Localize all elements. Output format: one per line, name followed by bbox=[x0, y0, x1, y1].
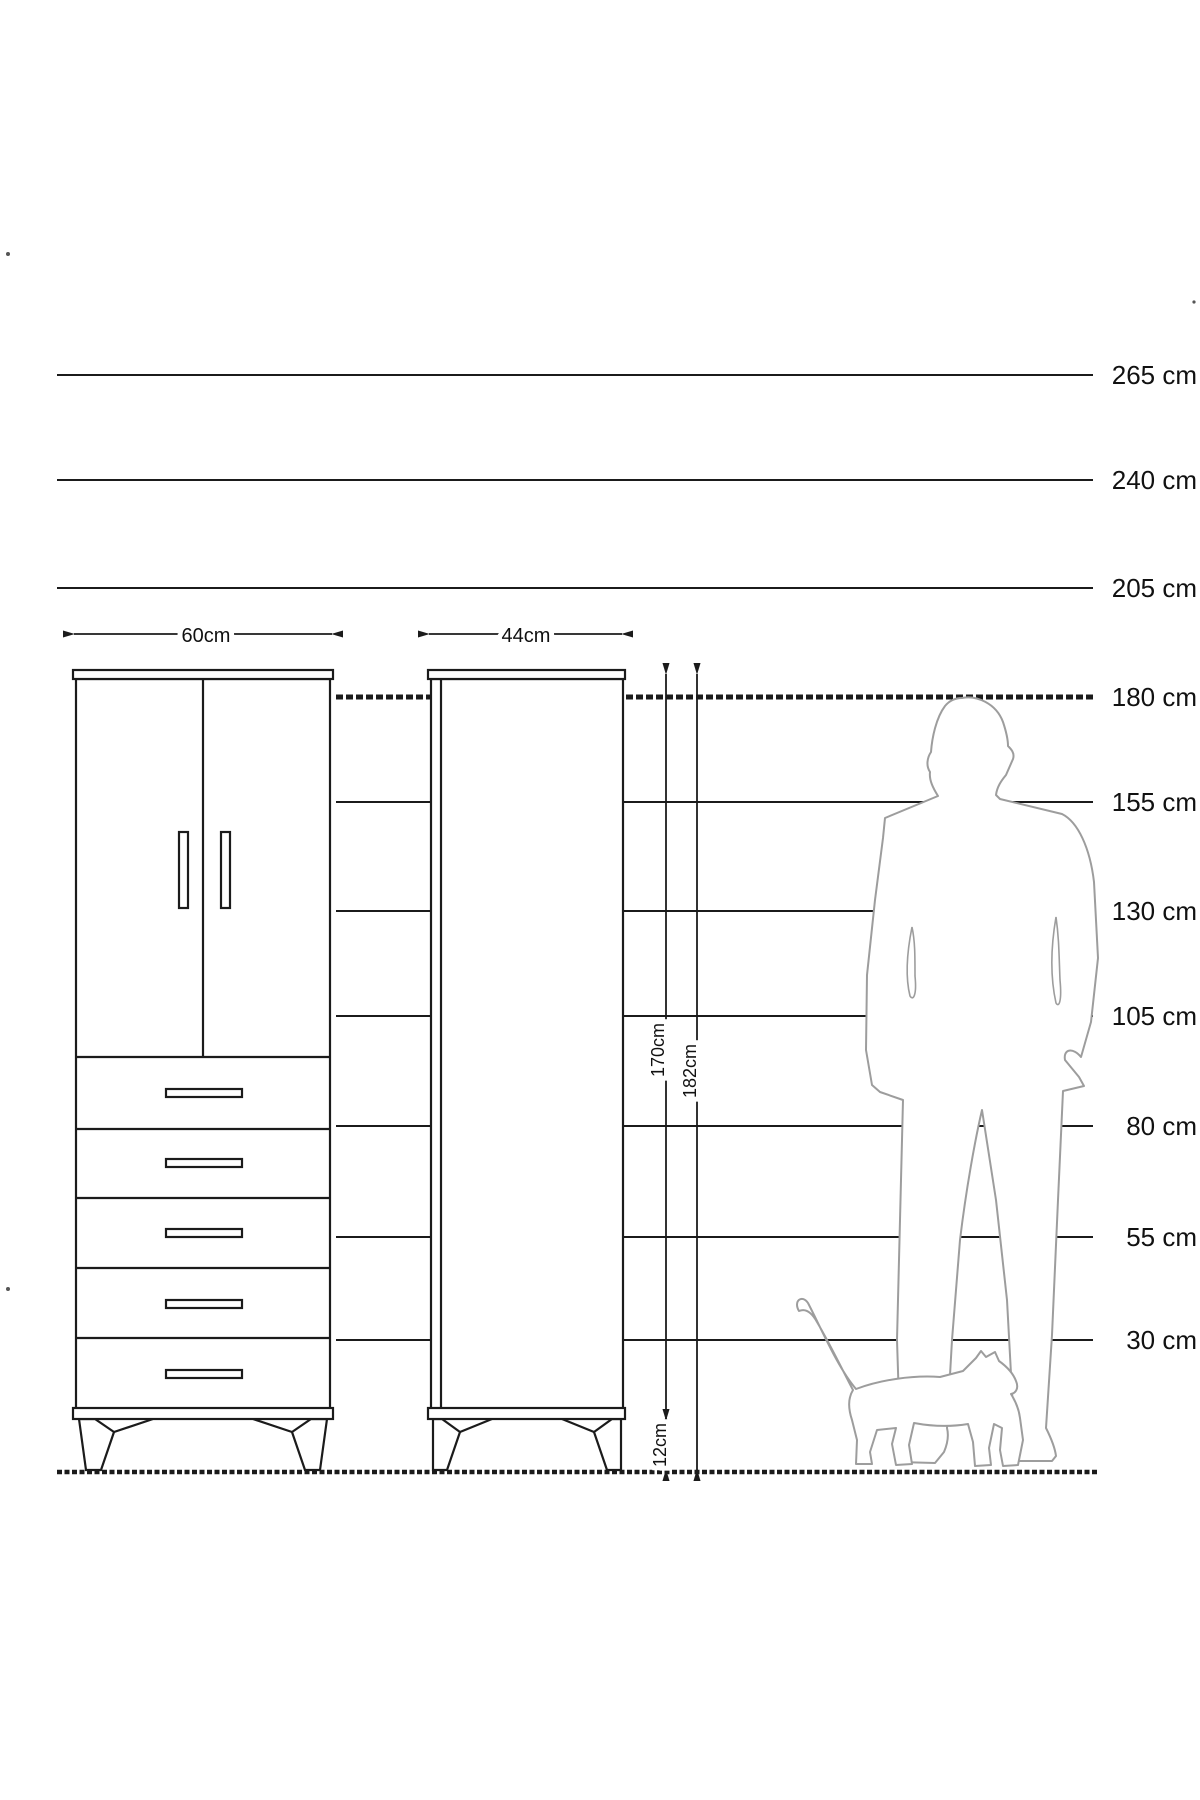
total-height-label: 182cm bbox=[680, 1044, 700, 1098]
drawer-handle bbox=[166, 1229, 242, 1237]
cabinet-bottom-board bbox=[428, 1408, 625, 1419]
wardrobe-bottom-board bbox=[73, 1408, 333, 1419]
cabinet-body bbox=[431, 679, 623, 1410]
drawer-handle bbox=[166, 1300, 242, 1308]
speck bbox=[6, 1287, 10, 1291]
wardrobe-door-handle-left bbox=[179, 832, 188, 908]
drawer-handle bbox=[166, 1370, 242, 1378]
cabinet-top-board bbox=[428, 670, 625, 679]
wardrobe-top-board bbox=[73, 670, 333, 679]
height-label: 80 cm bbox=[1126, 1111, 1197, 1141]
height-label: 180 cm bbox=[1112, 682, 1197, 712]
height-label: 265 cm bbox=[1112, 360, 1197, 390]
cabinet-body-height-label: 170cm bbox=[648, 1023, 668, 1077]
height-label: 130 cm bbox=[1112, 896, 1197, 926]
height-label: 30 cm bbox=[1126, 1325, 1197, 1355]
wardrobe-drawing bbox=[73, 670, 333, 1470]
wardrobe-door-handle-right bbox=[221, 832, 230, 908]
height-label: 105 cm bbox=[1112, 1001, 1197, 1031]
speck bbox=[1192, 300, 1195, 303]
cabinet-width-label: 44cm bbox=[502, 625, 551, 647]
height-label: 240 cm bbox=[1112, 465, 1197, 495]
cabinet-drawing bbox=[428, 670, 625, 1470]
drawer-handle bbox=[166, 1089, 242, 1097]
height-label: 55 cm bbox=[1126, 1222, 1197, 1252]
height-label: 205 cm bbox=[1112, 573, 1197, 603]
wardrobe-width-label: 60cm bbox=[182, 625, 231, 647]
drawer-handle bbox=[166, 1159, 242, 1167]
height-label: 155 cm bbox=[1112, 787, 1197, 817]
leg-height-label: 12cm bbox=[650, 1423, 670, 1467]
furniture-dimension-diagram: 265 cm240 cm205 cm180 cm155 cm130 cm105 … bbox=[0, 0, 1200, 1800]
diagram-canvas: 265 cm240 cm205 cm180 cm155 cm130 cm105 … bbox=[0, 0, 1200, 1800]
speck bbox=[6, 252, 10, 256]
